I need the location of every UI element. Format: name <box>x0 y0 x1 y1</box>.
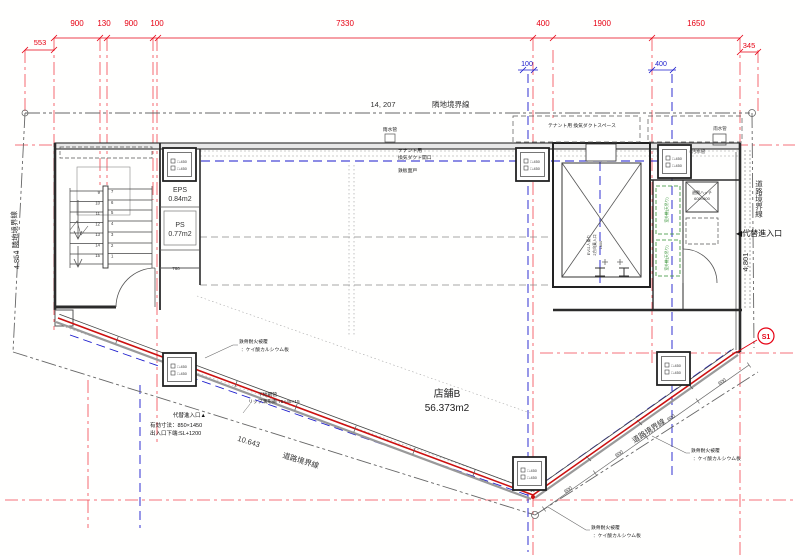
svg-text:1650: 1650 <box>687 19 705 28</box>
shop-name: 店舗B <box>434 387 461 400</box>
base-channel-text-1: 下地鋼管 <box>258 391 277 398</box>
boundary-bottom-label: 道路境界線 <box>281 450 320 471</box>
top-wall-annotations: 雨水管 テナント用 換気ダクト開口 鉄板面戸 <box>383 126 432 174</box>
ps-label: PS <box>175 222 185 229</box>
floor-plan-drawing: □-450 □-450 <box>0 0 800 556</box>
eps-ps-shafts: EPS 0.84m2 PS 0.77m2 760 <box>160 187 200 271</box>
dim-345: 345 <box>743 41 756 50</box>
svg-text:600: 600 <box>614 449 624 459</box>
eps-label: EPS <box>173 187 187 194</box>
svg-text:400: 400 <box>536 19 550 28</box>
svg-text:7330: 7330 <box>336 19 354 28</box>
alt-entry-size: 有効寸法：850×1450 <box>150 421 202 429</box>
svg-text:600: 600 <box>717 377 727 387</box>
boundary-bottom-length: 10.643 <box>236 434 261 449</box>
svg-text:2: 2 <box>111 243 114 248</box>
rain-pipe-label: 雨水管 <box>383 126 398 133</box>
fireproof-callout-bottom: 鉄骨耐火被覆 ：ケイ酸カルシウム板 <box>548 507 641 539</box>
hatch-size: 600×600 <box>694 196 710 201</box>
stair-step-numbers: 910 1112 1314 15 <box>95 190 100 258</box>
svg-text:6: 6 <box>111 200 114 205</box>
svg-text:600: 600 <box>563 485 573 495</box>
s1-label: S1 <box>762 334 771 341</box>
boundary-right-vert-label: 道路境界線 <box>754 179 763 218</box>
fireproof-text-1: 鉄骨耐火被覆 <box>239 338 268 345</box>
svg-text:1: 1 <box>111 254 114 259</box>
tenant-duct-space <box>513 116 742 142</box>
fireproof-text-1: 鉄骨耐火被覆 <box>591 524 620 531</box>
svg-text:900: 900 <box>124 19 138 28</box>
s1-section-marker: S1 <box>737 328 774 352</box>
stair-center-rail <box>103 186 108 268</box>
building-walls <box>55 143 742 352</box>
escape-hatch: 避難ハッチ 600×600 <box>686 182 718 212</box>
fireproof-text-1: 鉄骨耐火被覆 <box>691 447 720 454</box>
svg-text:10: 10 <box>95 201 100 206</box>
tenant-duct-note-2: 換気ダクト開口 <box>398 154 432 161</box>
boundary-top-label: 隣地境界線 <box>432 99 470 109</box>
boundary-top-length: 14, 207 <box>370 100 395 109</box>
svg-text:14: 14 <box>95 243 100 248</box>
sewer-pipe-label: ○汚水管 <box>689 148 706 155</box>
ps-width-dim: 760 <box>172 266 180 271</box>
svg-text:130: 130 <box>97 19 111 28</box>
svg-text:600: 600 <box>666 413 676 423</box>
tenant-duct-note-3: 鉄板面戸 <box>398 167 417 174</box>
rain-pipe-label: 雨水管 <box>713 125 727 132</box>
svg-text:100: 100 <box>150 19 164 28</box>
svg-text:4: 4 <box>111 221 114 226</box>
outdoor-unit-label: 室外機(天吊り) <box>664 197 669 223</box>
svg-text:12: 12 <box>95 222 100 227</box>
svg-text:3: 3 <box>111 232 114 237</box>
base-channel-text-2: リップ溝形鋼 75×45×15 <box>248 398 300 405</box>
stair-step-numbers: 76 54 32 1 <box>111 189 114 259</box>
shop-area: 56.373m2 <box>425 403 470 414</box>
fireproof-text-2: ：ケイ酸カルシウム板 <box>593 532 641 539</box>
dim-553: 553 <box>34 38 47 47</box>
service-room-door <box>683 249 717 283</box>
stair-direction-arrows <box>70 200 88 267</box>
blue-dim-100: 100 <box>521 61 533 68</box>
fireproof-text-2: ：ケイ酸カルシウム板 <box>693 455 741 462</box>
alt-entry-note-bottom: 代替進入口▲ 有効寸法：850×1450 出入口下端:SL+1200 <box>150 411 206 437</box>
tenant-duct-note-1: テナント用 <box>398 148 422 154</box>
storefront-facade <box>56 314 738 499</box>
ev-label-3: 1800 <box>599 241 603 249</box>
svg-text:7: 7 <box>111 189 114 194</box>
ev-label-2: 2方向乗入口 <box>592 234 597 255</box>
tenant-duct-space-label: テナント用 換気ダクトスペース <box>548 122 616 129</box>
red-dimension-lines <box>22 35 761 55</box>
eps-area: 0.84m2 <box>168 196 191 203</box>
svg-text:5: 5 <box>111 210 114 215</box>
alt-entry-title: 代替進入口▲ <box>173 411 206 419</box>
elevator-shaft: EV11人乗り 2方向乗入口 1800 <box>553 143 650 287</box>
stair-block <box>60 147 155 307</box>
stair-door <box>116 268 155 307</box>
svg-text:11: 11 <box>96 211 101 216</box>
pipes-top-right: 雨水管 ○汚水管 <box>689 125 727 155</box>
boundary-left-label: 4.854 隣地境界線 <box>8 210 21 269</box>
fireproof-callout-right: 鉄骨耐火被覆 ：ケイ酸カルシウム板 <box>652 436 741 462</box>
site-boundary-lines <box>13 113 758 515</box>
ps-area: 0.77m2 <box>168 231 191 238</box>
facade-tip-point <box>531 495 535 499</box>
outdoor-unit-label: 室外機(天吊り) <box>664 245 669 271</box>
svg-text:900: 900 <box>70 19 84 28</box>
floor-plan-canvas: □-450 □-450 <box>0 0 800 556</box>
fireproof-callout-left: 鉄骨耐火被覆 ：ケイ酸カルシウム板 <box>205 338 289 358</box>
fireproof-text-2: ：ケイ酸カルシウム板 <box>241 346 289 353</box>
blue-dim-400: 400 <box>655 61 667 68</box>
ev-label-1: EV11人乗り <box>586 235 591 255</box>
alt-entry-right-label: ◀代替進入口 <box>736 228 782 238</box>
hatch-label: 避難ハッチ <box>692 189 712 195</box>
red-dimension-labels: 900 130 900 100 7330 400 1900 1650 553 3… <box>34 19 756 50</box>
svg-text:15: 15 <box>95 253 100 258</box>
alt-entry-sill: 出入口下端:SL+1200 <box>150 429 201 437</box>
boundary-right-length: 4,801 <box>741 253 750 272</box>
svg-text:1900: 1900 <box>593 19 611 28</box>
ev-plus-marks <box>602 259 623 265</box>
svg-text:13: 13 <box>95 232 100 237</box>
facade-mullion-ticks <box>116 337 693 477</box>
